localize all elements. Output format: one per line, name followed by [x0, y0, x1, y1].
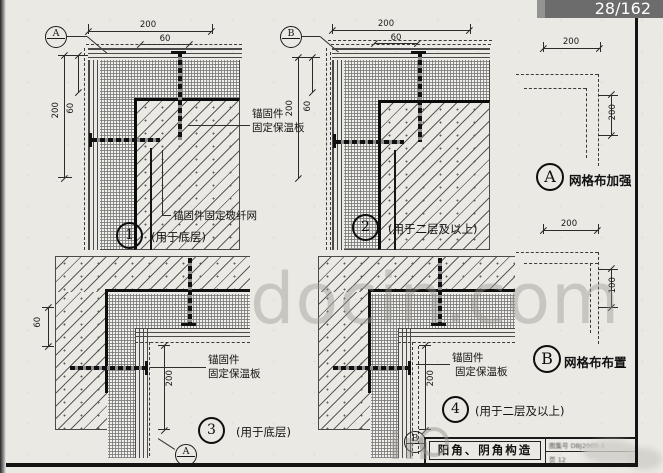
dim-value: 200: [133, 21, 163, 30]
detail-caption-2: (用于二层及以上): [388, 221, 477, 237]
atlas-label: 图集号: [549, 442, 569, 450]
mesh-dashed-line: [598, 74, 599, 166]
watermark-ring: [419, 427, 449, 457]
dim-value: 60: [34, 309, 43, 335]
dim-value: 60: [304, 93, 313, 119]
dim-value: 200: [427, 365, 436, 391]
section-marker-a: A: [45, 26, 67, 48]
outer-mesh-dashed-line: [328, 40, 492, 41]
label-leader: [162, 215, 171, 216]
dim-ext: [598, 307, 618, 308]
mesh-dashed-line: [590, 263, 591, 333]
render-coat-left: [88, 60, 100, 250]
dim-value: 200: [166, 365, 175, 391]
anchor-label: 固定保温板: [455, 366, 508, 379]
anchor-bolt-horizontal: [70, 366, 146, 370]
label-leader: [188, 125, 250, 126]
wall-corner-line: [105, 289, 250, 292]
anchor-head: [333, 134, 336, 148]
dim-line-left: [48, 308, 49, 346]
insulation-board-top: [344, 60, 490, 100]
anchor-bolt-horizontal: [92, 138, 160, 142]
dim-line-left-inner: [78, 56, 79, 92]
atlas-page: A 200 60 200 60 锚固件 固定保温板 锚固件固定玻纤网 1 (用于…: [0, 0, 663, 473]
dim-value: 60: [150, 35, 180, 44]
anchor-head: [408, 361, 411, 375]
drawing-frame-right: [635, 0, 638, 466]
detail-letter-a: A: [536, 163, 564, 191]
anchor-bolt-vertical: [178, 52, 182, 140]
dim-line-top: [543, 230, 598, 231]
dim-line-top: [543, 48, 600, 49]
mesh-dashed-line: [516, 252, 598, 253]
label-leader: [150, 367, 206, 368]
label-leader: [416, 364, 450, 365]
mesh-dashed-line: [524, 263, 598, 264]
dim-value: 200: [544, 220, 594, 229]
detail-number-3: 3: [198, 417, 225, 444]
outer-mesh-dashed-line: [135, 342, 250, 343]
detail-number-2: 2: [352, 214, 379, 241]
outer-mesh-dashed-line: [149, 342, 150, 456]
anchor-label: 锚固件: [252, 108, 284, 121]
mesh-dashed-line: [598, 252, 599, 344]
section-marker-b: B: [280, 26, 302, 48]
outer-mesh-dashed-line: [331, 44, 491, 45]
drawing-frame-bottom: [6, 463, 638, 467]
anchor-head: [411, 51, 426, 54]
dim-line-left: [298, 58, 299, 178]
dim-value: 100: [609, 272, 618, 298]
detail-letter-b: B: [533, 345, 561, 373]
section-marker-letter: A: [46, 29, 66, 39]
outer-mesh-dashed-line: [84, 48, 85, 250]
dim-ext: [158, 429, 170, 430]
page-left-edge: [0, 0, 6, 473]
concrete-wall-top: [55, 256, 250, 292]
section-marker-letter: A: [176, 447, 196, 457]
anchor-head: [181, 323, 196, 326]
dim-value: 200: [609, 99, 618, 125]
render-coat-right: [135, 328, 148, 458]
viewer-page-indicator: 28/162: [537, 0, 663, 18]
dim-line-top: [88, 31, 212, 32]
detail-caption-4: (用于二层及以上): [475, 403, 564, 419]
anchor-bolt-vertical: [438, 258, 442, 326]
mesh-dashed-line: [586, 88, 587, 158]
dim-value: 60: [67, 95, 76, 121]
dim-ext: [598, 135, 618, 136]
render-coat-bottom: [398, 328, 515, 340]
anchor-bolt-vertical: [418, 52, 422, 142]
dim-line-left: [64, 56, 65, 178]
marker-divider: [47, 38, 65, 39]
dim-value: 200: [286, 95, 295, 121]
anchor-bolt-vertical: [188, 258, 192, 326]
outer-mesh-dashed-line: [86, 44, 242, 45]
dim-line-left-inner: [312, 58, 313, 92]
dim-line-top: [332, 30, 470, 31]
label-leader: [162, 150, 163, 216]
render-coat-bottom: [135, 328, 250, 340]
marker-leader-diag: [158, 438, 175, 450]
marker-leader: [302, 36, 320, 37]
dim-value: 60: [381, 34, 411, 43]
detail-number-4: 4: [442, 396, 469, 423]
detail-caption-3: (用于底层): [236, 424, 291, 440]
outer-mesh-dashed-line: [330, 52, 331, 250]
mesh-dashed-line: [516, 74, 598, 75]
anchor-label: 固定保温板: [208, 368, 261, 381]
outer-mesh-dashed-line: [326, 48, 327, 250]
dim-value: 200: [52, 97, 61, 123]
detail-a-label: 网格布加强: [569, 170, 632, 189]
insulation-board-top: [100, 60, 240, 98]
anchor-bolt-horizontal: [333, 366, 409, 370]
concrete-wall-top: [318, 256, 515, 292]
dim-ext: [58, 177, 72, 178]
marker-divider: [282, 38, 300, 39]
outer-mesh-dashed-line: [398, 342, 515, 343]
render-coat-top: [332, 48, 490, 60]
anchor-label: 锚固件: [208, 354, 240, 367]
anchor-head: [171, 51, 186, 54]
anchor-head: [145, 361, 148, 375]
dim-ext: [42, 346, 54, 347]
marker-divider: [177, 456, 195, 457]
anchor-label: 锚固件: [452, 352, 484, 365]
render-coat-top: [88, 48, 242, 60]
anchor-bolt-horizontal: [336, 140, 404, 144]
anchor-head: [89, 133, 92, 147]
marker-leader: [67, 36, 87, 37]
dim-value: 200: [546, 38, 596, 47]
detail-caption-1: (用于底层): [151, 229, 206, 245]
concrete-wall-left: [318, 292, 370, 430]
anchor-head: [431, 323, 446, 326]
insulation-board-left: [108, 294, 135, 458]
concrete-wall-left: [55, 292, 107, 430]
anchor-label: 固定保温板: [252, 122, 305, 135]
mesh-label: 锚固件固定玻纤网: [173, 210, 257, 223]
detail-b-label: 网格布布置: [564, 352, 627, 371]
mesh-dashed-line: [524, 88, 586, 89]
render-coat-left: [332, 60, 344, 250]
section-marker-letter: B: [281, 29, 301, 39]
dim-value: 200: [371, 20, 401, 29]
detail-number-1: 1: [116, 222, 143, 249]
insulation-board-left: [371, 294, 398, 458]
